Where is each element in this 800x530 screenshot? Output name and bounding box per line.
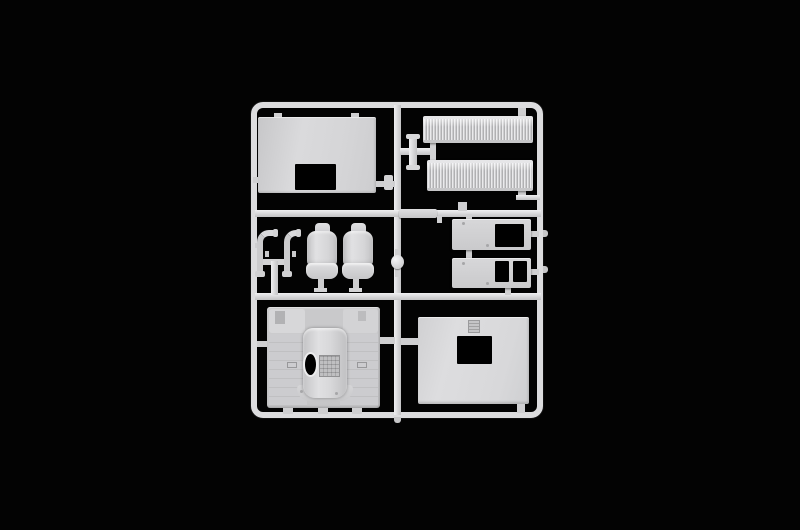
pedal-plate bbox=[319, 355, 340, 377]
grille-highlight bbox=[423, 119, 533, 127]
door-card-lower-part bbox=[452, 258, 531, 288]
seat-foot bbox=[314, 288, 327, 292]
sprue-gate bbox=[437, 216, 442, 223]
seat-right-part bbox=[343, 223, 373, 279]
door-card-upper-part bbox=[452, 219, 531, 250]
sprue-gate bbox=[530, 269, 539, 275]
handle-end-cap bbox=[296, 229, 301, 237]
sprue-photo bbox=[0, 0, 800, 530]
sprue-gate bbox=[505, 287, 511, 295]
sprue-knob-part bbox=[391, 255, 404, 269]
runner-cap bbox=[406, 165, 420, 170]
cut-gate-nub bbox=[543, 266, 548, 273]
panel-cutout bbox=[513, 261, 527, 282]
sprue-gate bbox=[458, 202, 467, 211]
grille-lower-part bbox=[427, 160, 533, 191]
ejector-pin-mark bbox=[335, 392, 338, 395]
seat-backrest bbox=[343, 231, 373, 266]
panel-cutout bbox=[457, 336, 492, 364]
seat-backrest bbox=[307, 231, 337, 266]
floor-recess bbox=[358, 311, 366, 321]
sprue-gate bbox=[384, 175, 393, 190]
ejector-pin-mark bbox=[462, 222, 465, 225]
ejector-pin-mark bbox=[462, 262, 465, 265]
runner-cross-bar bbox=[409, 137, 417, 167]
ejector-pin-mark bbox=[486, 282, 489, 285]
runner-cap bbox=[406, 134, 420, 139]
sprue-gate bbox=[530, 231, 539, 237]
sprue-gate bbox=[395, 268, 400, 277]
panel-cutout bbox=[495, 224, 524, 247]
sprue-gate bbox=[401, 338, 418, 345]
seat-cushion bbox=[306, 263, 338, 279]
grille-highlight bbox=[427, 163, 533, 171]
floor-recess bbox=[275, 311, 285, 324]
cut-gate-nub bbox=[543, 230, 548, 237]
trim-strip-part bbox=[399, 209, 437, 218]
ejector-pin-mark bbox=[300, 390, 303, 393]
cab-floor-part bbox=[267, 307, 380, 408]
handle-tab bbox=[292, 251, 296, 257]
hatch-detail bbox=[468, 320, 480, 333]
grille-upper-part bbox=[423, 116, 533, 143]
window-opening bbox=[295, 164, 336, 190]
floor-front-section bbox=[305, 309, 343, 329]
seat-cushion bbox=[342, 263, 374, 279]
ejector-pin-mark bbox=[486, 244, 489, 247]
sprue-gate bbox=[380, 337, 395, 344]
handle-foot bbox=[255, 271, 265, 277]
handle-tab bbox=[265, 251, 269, 257]
cab-front-panel-part bbox=[418, 317, 529, 404]
seat-left-part bbox=[307, 223, 337, 279]
steering-column-hole bbox=[303, 352, 318, 377]
handle-end-cap bbox=[273, 229, 278, 237]
mounting-slot bbox=[357, 362, 367, 368]
cut-gate-nub bbox=[394, 417, 401, 423]
upper-cross-runner bbox=[255, 210, 541, 217]
mounting-slot bbox=[287, 362, 297, 368]
seat-foot bbox=[349, 288, 362, 292]
cab-rear-panel-part bbox=[258, 117, 376, 193]
runner-segment bbox=[516, 195, 540, 200]
lower-cross-runner bbox=[255, 293, 541, 300]
panel-cutout bbox=[495, 261, 509, 282]
handle-foot bbox=[282, 271, 292, 277]
